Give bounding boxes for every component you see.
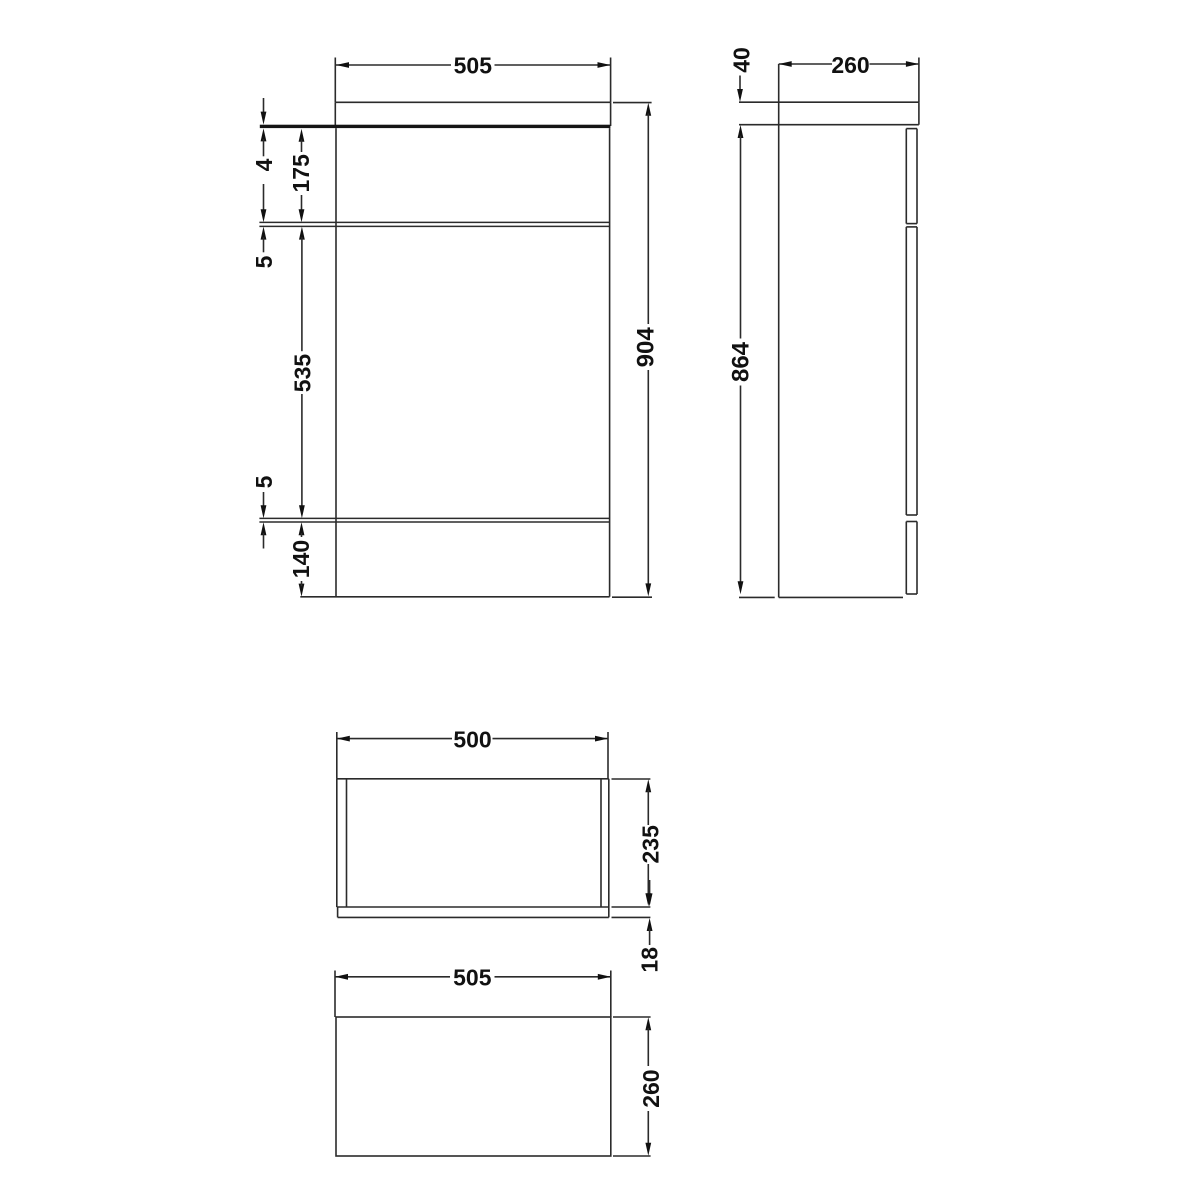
svg-text:864: 864 [728, 341, 755, 382]
svg-text:5: 5 [251, 475, 277, 488]
svg-text:40: 40 [728, 47, 754, 73]
svg-text:260: 260 [638, 1069, 664, 1107]
svg-text:140: 140 [288, 540, 314, 578]
svg-text:904: 904 [633, 327, 660, 368]
svg-text:175: 175 [288, 154, 314, 193]
svg-text:505: 505 [454, 52, 493, 78]
svg-text:500: 500 [453, 726, 491, 752]
svg-text:260: 260 [831, 52, 869, 78]
svg-text:18: 18 [636, 947, 662, 973]
svg-text:235: 235 [637, 825, 663, 864]
svg-text:535: 535 [290, 354, 316, 393]
svg-text:4: 4 [251, 158, 277, 171]
svg-text:5: 5 [251, 255, 277, 268]
svg-text:505: 505 [453, 965, 492, 991]
